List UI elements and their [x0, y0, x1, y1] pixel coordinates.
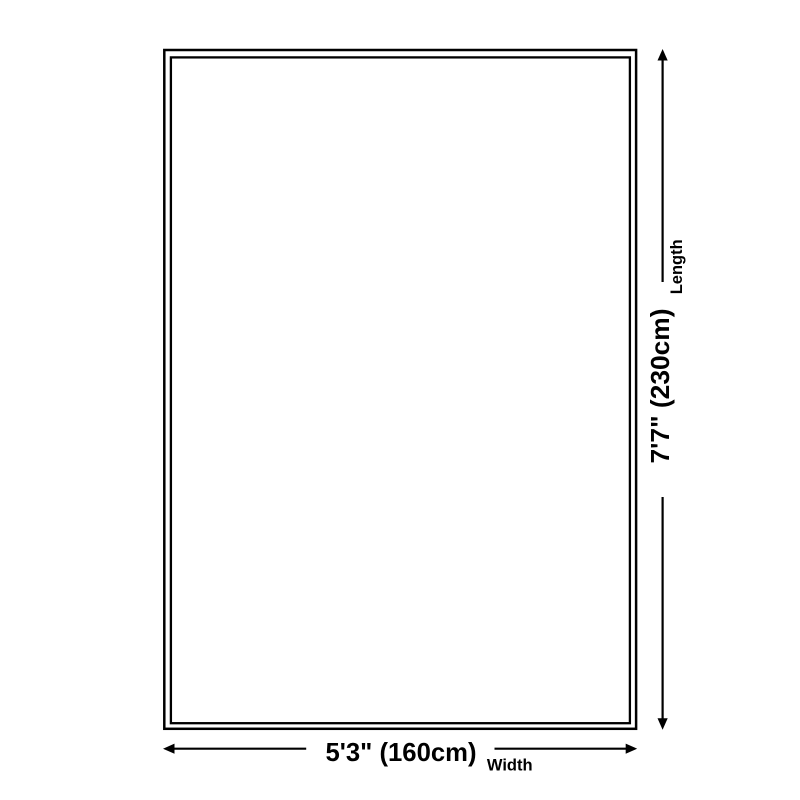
svg-text:7'7" (230cm): 7'7" (230cm): [645, 309, 675, 464]
svg-text:Width: Width: [487, 757, 533, 775]
svg-text:Length: Length: [668, 239, 686, 294]
svg-text:5'3" (160cm): 5'3" (160cm): [326, 737, 477, 767]
